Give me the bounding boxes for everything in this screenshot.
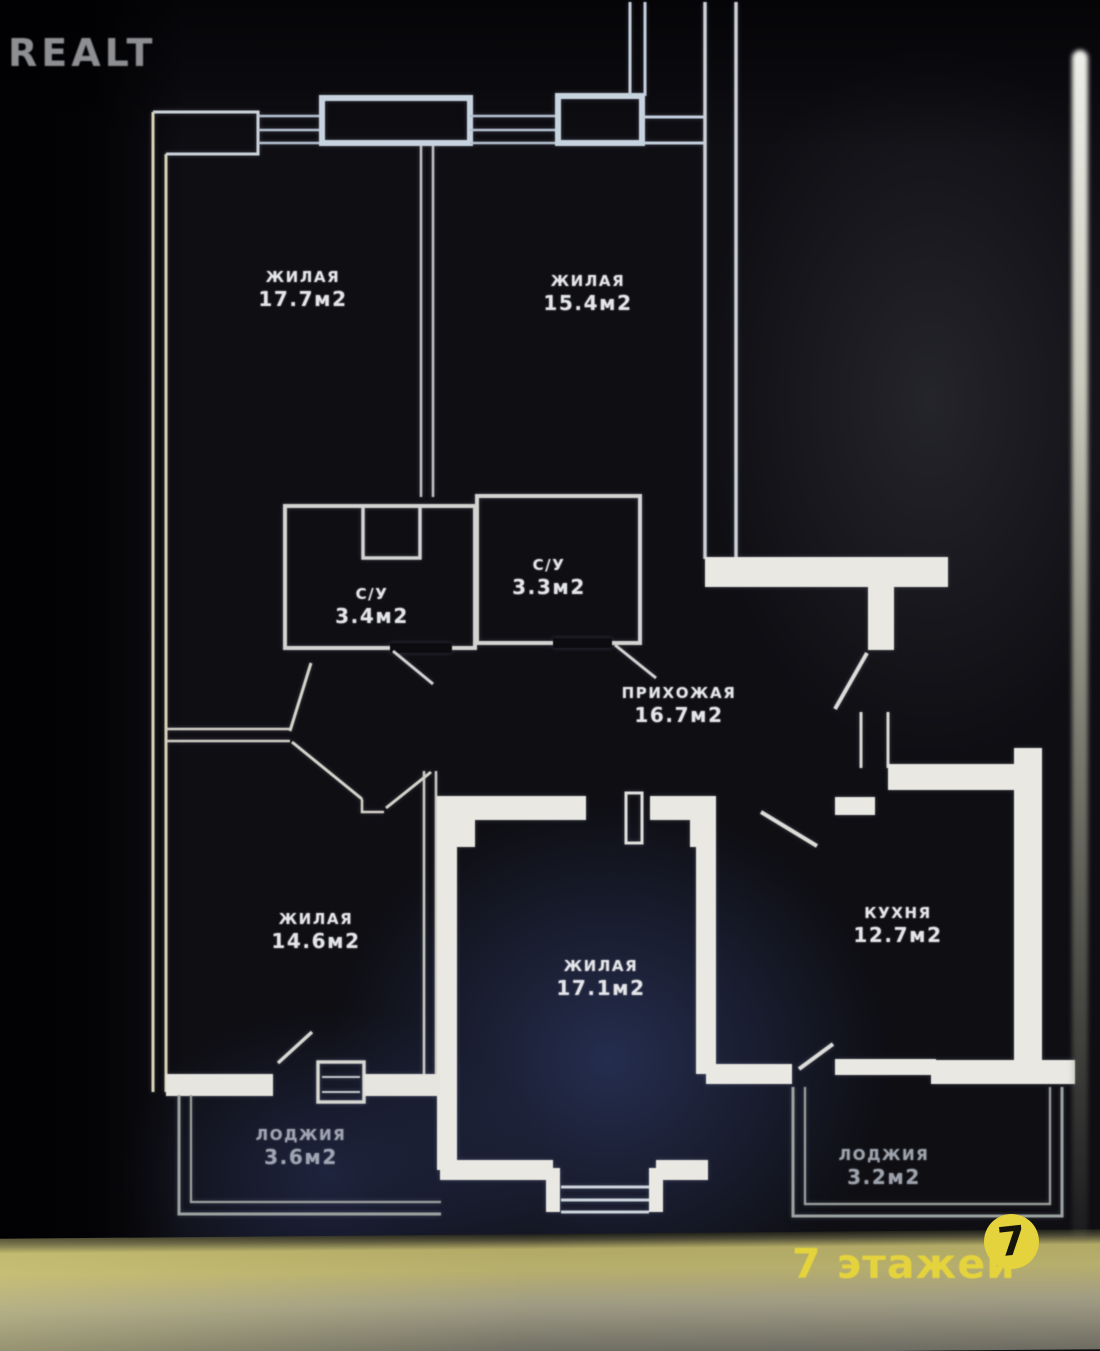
- room-area: 17.7м2: [258, 287, 347, 311]
- room-label-su-2: с/у 3.3м2: [512, 556, 586, 599]
- room-label-zhilaya-1: жилая 17.7м2: [258, 268, 347, 311]
- kitchen-door-swing: [761, 812, 817, 846]
- loggia-window: [318, 1062, 364, 1102]
- bedroom-partition: [424, 771, 436, 1086]
- room-area: 3.3м2: [512, 575, 586, 599]
- room-name: жилая: [271, 910, 360, 928]
- window-bay: [322, 98, 470, 143]
- balcony-window: [561, 1187, 649, 1212]
- room-name: лоджия: [256, 1126, 347, 1144]
- room-label-prihozhaya: прихожая 16.7м2: [622, 684, 737, 727]
- right-outer-wall: [705, 2, 736, 559]
- room-name: жилая: [556, 957, 645, 975]
- floors-badge-number: 7: [996, 1220, 1028, 1263]
- door-swing: [615, 645, 656, 678]
- entrance-door-swing: [835, 653, 867, 709]
- room-name: жилая: [258, 268, 347, 286]
- room-name: кухня: [853, 904, 942, 922]
- room-area: 16.7м2: [622, 703, 737, 727]
- floor-plan-svg: [0, 0, 1100, 1351]
- room-name: с/у: [335, 585, 409, 603]
- duct-shaft: [363, 506, 420, 558]
- room-area: 17.1м2: [556, 976, 645, 1000]
- loggia-door-swing: [799, 1044, 833, 1069]
- room-area: 3.2м2: [839, 1165, 930, 1189]
- screen-edge-reflection: [1072, 50, 1088, 1240]
- room-label-su-1: с/у 3.4м2: [335, 585, 409, 628]
- window-bay: [558, 96, 642, 143]
- room-label-zhilaya-4: жилая 17.1м2: [556, 957, 645, 1000]
- floors-badge-icon: 7: [984, 1214, 1039, 1269]
- room-area: 12.7м2: [853, 923, 942, 947]
- realt-watermark-logo: Realt: [8, 16, 156, 79]
- room-area: 15.4м2: [543, 291, 632, 315]
- room-label-zhilaya-3: жилая 14.6м2: [271, 910, 360, 953]
- room-name: прихожая: [622, 684, 737, 702]
- bedroom-partition: [421, 146, 433, 497]
- room-label-lodzhiya-2: лоджия 3.2м2: [839, 1146, 930, 1189]
- room-label-zhilaya-2: жилая 15.4м2: [543, 272, 632, 315]
- room-label-lodzhiya-1: лоджия 3.6м2: [256, 1126, 347, 1169]
- room-area: 14.6м2: [271, 929, 360, 953]
- room-name: с/у: [512, 556, 586, 574]
- hallway-walls: [166, 663, 436, 1086]
- loggia-door-swing: [278, 1032, 312, 1063]
- door-swing: [290, 663, 311, 731]
- window-glazing: [470, 116, 558, 143]
- entrance-and-kitchen-walls: [705, 572, 1075, 1072]
- room-name: жилая: [543, 272, 632, 290]
- shaft-wall: [630, 2, 645, 96]
- door-swing: [393, 651, 433, 684]
- room-label-kuhnya: кухня 12.7м2: [853, 904, 942, 947]
- room-area: 3.6м2: [256, 1145, 347, 1169]
- left-room-bottom-walls: [166, 1032, 440, 1102]
- door-swing: [292, 742, 362, 799]
- screenshot-photo: жилая 17.7м2 жилая 15.4м2 с/у 3.4м2 с/у …: [0, 0, 1100, 1351]
- door-jamb: [626, 793, 642, 843]
- window-glazing: [258, 116, 322, 143]
- floors-text: 7 этажей: [792, 1240, 1016, 1288]
- room-area: 3.4м2: [335, 604, 409, 628]
- room-name: лоджия: [839, 1146, 930, 1164]
